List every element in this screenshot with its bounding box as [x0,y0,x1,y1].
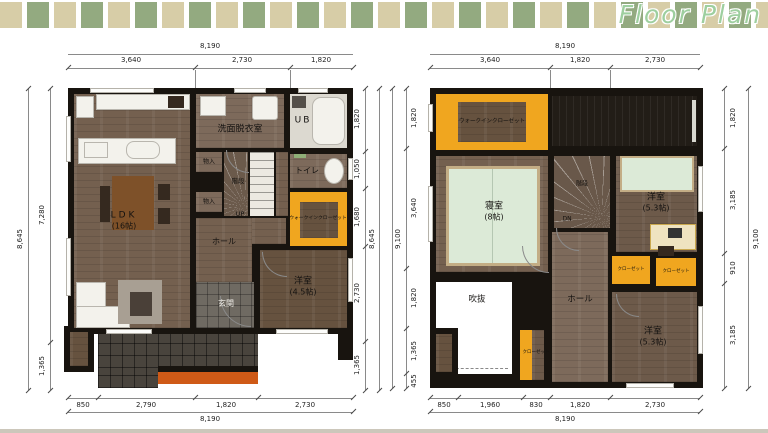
toilet-fixture [324,158,344,184]
counter-basin [126,141,160,159]
desk-chair [658,246,674,256]
room-hall [196,218,252,282]
dimension-line [430,412,700,413]
washing-machine [252,96,278,120]
room-label-bedroom1: 洋室 (4.5帖) [290,276,317,297]
shower-unit [292,96,306,108]
dimension-tick [722,386,728,392]
room-label-wic: ウォークインクローゼット [289,216,347,222]
room-label-bath: UB [295,115,312,126]
room-label-washroom: 洗面脱衣室 [217,124,262,135]
room-label-bedroom2: 洋室 (5.3帖) [643,192,670,213]
hall-corridor [252,218,286,244]
dimension-tick [363,388,369,394]
dimension-tick [746,386,752,392]
dimension-tick [351,65,357,71]
dimension-line [430,68,700,69]
room-label-hall2: ホール [567,295,593,306]
bottom-band [0,429,768,433]
extension-line [195,70,196,88]
room-label-entrance: 玄関 [218,299,234,309]
dimension-line [379,88,380,390]
stair-landing [276,152,288,216]
dimension-tick [404,386,410,392]
floor-plan-page: Floor Plan [0,0,768,433]
room-label-closet1: クローゼット [618,267,645,273]
dimension-line [724,88,725,388]
room-label-closet2: クローゼット [663,269,690,275]
dimension-line [50,88,51,390]
dimension-line [392,88,393,388]
window [428,186,433,242]
balcony-rail [692,100,696,142]
dining-chair [158,184,170,200]
dimension-tick [48,388,54,394]
laptop [668,228,682,238]
dimension-line [365,88,366,390]
bathtub [312,97,345,145]
dimension-line [68,412,353,413]
window [698,306,703,354]
dimension-tick [351,409,357,415]
dimension-tick [698,65,704,71]
fridge [76,96,94,118]
dimension-tick [698,409,704,415]
dimension-tick [377,388,383,394]
room-label-up: UP [236,210,245,218]
room-label-bedroom3: 洋室 (5.3帖) [640,326,667,347]
porch-step-orange [158,372,258,384]
balcony [552,96,697,146]
void-corner-floor [436,334,452,372]
room-label-wic2: ウォークインクローゼット [459,119,525,126]
dining-chair [158,208,170,224]
room-label-stairs: 階段 [232,177,245,185]
porch-tiles [98,334,258,368]
dimension-line [68,398,353,399]
dimension-line [68,68,353,69]
vanity-sink [200,96,226,116]
dining-bench [100,186,110,222]
dimension-tick [351,395,357,401]
extension-line [290,70,291,88]
dimension-line [430,398,700,399]
window [428,104,433,132]
dimension-line [748,88,749,388]
extension-line [550,70,551,88]
room-label-closet3: クローゼット [523,350,550,356]
window [66,238,71,296]
dimension-line [430,54,700,55]
window [66,116,71,162]
dimension-tick [698,395,704,401]
window [234,88,266,93]
porch-tiles-lower [98,368,158,388]
toilet-shelf [294,154,306,158]
dimension-tick [390,386,396,392]
room-label-toilet: トイレ [295,166,319,176]
window [698,166,703,212]
room-label-master: 寝室 (8帖) [484,201,503,222]
dimension-tick [26,388,32,394]
dimension-line [28,88,29,390]
room-hall2 [552,232,608,382]
dimension-line [406,88,407,388]
ottoman [130,292,152,316]
cooktop [168,96,184,108]
stairs-treads [250,152,274,216]
plan1-porch-floor [70,332,88,366]
room-label-hall: ホール [212,237,236,247]
room-label-dn: DN [562,215,571,223]
room-label-stairs2: 階段 [576,180,588,188]
window [106,329,152,334]
bedroom2-bed [620,156,694,192]
room-label-ldk: LDK (16帖) [111,210,138,231]
dimension-line [68,54,353,55]
window [276,329,328,334]
page-title: Floor Plan [619,0,762,29]
room-label-storage2: 物入 [203,198,215,206]
window [626,383,674,388]
window [90,88,154,93]
kitchen-sink [84,142,108,158]
plan1-wall-stub [338,334,353,360]
room-label-storage1: 物入 [203,158,215,166]
window [298,88,328,93]
extension-line [610,70,611,88]
room-label-void: 吹抜 [468,295,485,306]
